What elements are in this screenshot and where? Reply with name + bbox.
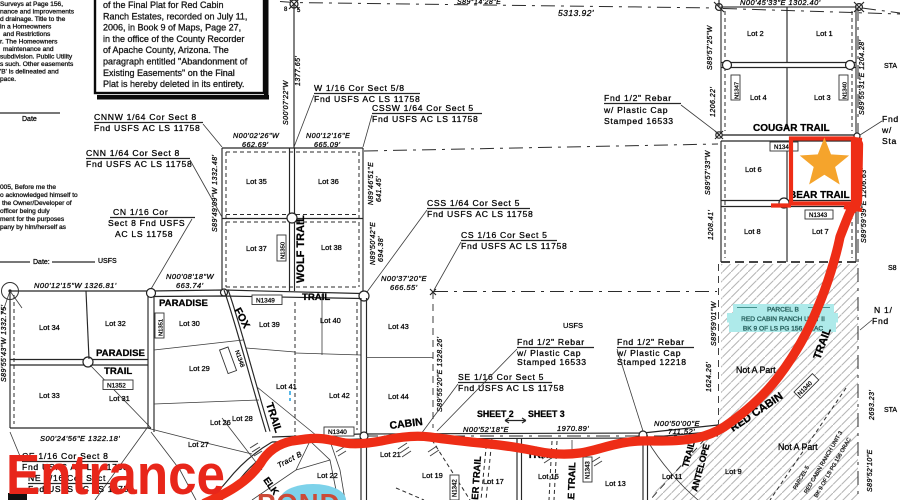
svg-text:TRAIL: TRAIL [302, 292, 330, 303]
svg-text:1624.26': 1624.26' [706, 362, 713, 392]
svg-text:Lot 7: Lot 7 [812, 227, 829, 236]
svg-text:of the Final Plat for Red Cabi: of the Final Plat for Red Cabin [103, 0, 224, 10]
svg-text:Fnd USFS AC LS 11758: Fnd USFS AC LS 11758 [461, 241, 568, 251]
svg-text:W 1/16 Cor Sect 5/8: W 1/16 Cor Sect 5/8 [314, 83, 405, 93]
svg-text:w/ Plastic Cap: w/ Plastic Cap [603, 105, 668, 115]
svg-text:Lot 13: Lot 13 [605, 479, 626, 488]
svg-text:Lot 34: Lot 34 [39, 323, 60, 332]
svg-text:STA: STA [884, 407, 897, 414]
svg-text:005, Before me the: 005, Before me the [0, 184, 56, 191]
svg-text:Lot 22: Lot 22 [317, 471, 338, 480]
svg-text:subdivision. Public Utility: subdivision. Public Utility [0, 54, 73, 61]
svg-text:N00'45'33"E 1302.40': N00'45'33"E 1302.40' [740, 0, 821, 7]
svg-text:Fnd: Fnd [882, 114, 899, 124]
svg-text:Fnd USFS AC LS 11758: Fnd USFS AC LS 11758 [372, 114, 479, 124]
svg-text:Lot 44: Lot 44 [388, 392, 409, 401]
svg-text:CNN 1/64 Cor Sect 8: CNN 1/64 Cor Sect 8 [86, 148, 180, 158]
svg-text:Fnd: Fnd [872, 316, 889, 326]
svg-text:N89'50'42"E: N89'50'42"E [370, 222, 377, 265]
svg-text:WOLF TRAIL: WOLF TRAIL [295, 215, 307, 283]
svg-text:N00'12'16"E: N00'12'16"E [306, 131, 350, 140]
svg-text:Stamped 12218: Stamped 12218 [617, 357, 687, 367]
svg-text:Stamped 16533: Stamped 16533 [517, 357, 587, 367]
svg-text:and Restrictions: and Restrictions [3, 31, 51, 38]
svg-text:Sect 8 Fnd USFS: Sect 8 Fnd USFS [108, 218, 185, 228]
svg-text:Lot 42: Lot 42 [329, 391, 350, 400]
svg-text:Lot 17: Lot 17 [483, 477, 504, 486]
svg-text:S89'55'20"E 1328.26': S89'55'20"E 1328.26' [437, 336, 444, 412]
svg-text:w/: w/ [881, 125, 892, 135]
svg-text:PARADISE: PARADISE [96, 348, 145, 359]
svg-text:N1350: N1350 [281, 242, 287, 259]
svg-text:1377.65': 1377.65' [295, 56, 302, 86]
svg-text:S89'59'01"W: S89'59'01"W [711, 300, 718, 346]
svg-text:N00'52'18"E: N00'52'18"E [463, 425, 509, 434]
svg-text:Lot 28: Lot 28 [232, 414, 253, 423]
svg-text:Sta: Sta [882, 136, 897, 146]
svg-text:Fnd USFS AC LS 11758: Fnd USFS AC LS 11758 [94, 123, 201, 133]
svg-text:Fnd USFS AC LS 11758: Fnd USFS AC LS 11758 [86, 159, 193, 169]
svg-text:r. The Homeowners: r. The Homeowners [0, 39, 58, 46]
svg-text:N1343: N1343 [586, 461, 592, 479]
svg-text:Lot 36: Lot 36 [318, 177, 339, 186]
svg-text:N1342: N1342 [453, 479, 459, 497]
svg-text:CSS 1/64 Cor Sect 5: CSS 1/64 Cor Sect 5 [427, 198, 520, 208]
svg-text:N89'46'51"E: N89'46'51"E [368, 162, 375, 205]
svg-text:Surveys at Page 156,: Surveys at Page 156, [0, 1, 63, 8]
svg-text:2693.23': 2693.23' [869, 390, 876, 421]
svg-text:SHEET 2: SHEET 2 [477, 409, 514, 419]
svg-text:TRAIL: TRAIL [104, 366, 132, 377]
svg-text:Date: Date [22, 116, 37, 123]
svg-text:BEAR TRAIL: BEAR TRAIL [789, 190, 850, 201]
svg-text:N00'37'20"E: N00'37'20"E [381, 274, 427, 283]
svg-text:Lot 38: Lot 38 [321, 243, 342, 252]
svg-text:1208.41': 1208.41' [708, 210, 715, 240]
svg-text:Lot 33: Lot 33 [39, 391, 60, 400]
svg-text:S89'52'10"E: S89'52'10"E [867, 449, 874, 492]
svg-text:d drainage. Title to the: d drainage. Title to the [0, 16, 66, 23]
svg-text:Fnd 1/2" Rebar: Fnd 1/2" Rebar [517, 337, 585, 347]
svg-text:Plat is hereby deleted in its: Plat is hereby deleted in its entirety. [103, 79, 244, 89]
svg-text:CNNW 1/64 Cor Sect 8: CNNW 1/64 Cor Sect 8 [94, 112, 197, 122]
svg-text:S89'57'33"W: S89'57'33"W [705, 149, 712, 195]
svg-text:USFS: USFS [563, 321, 583, 330]
svg-text:Lot 15: Lot 15 [538, 472, 559, 481]
svg-text:Lot 40: Lot 40 [320, 316, 341, 325]
svg-text:N1349: N1349 [256, 298, 275, 305]
svg-text:Lot 29: Lot 29 [189, 364, 210, 373]
svg-text:Lot 21: Lot 21 [380, 450, 401, 459]
svg-text:1970.89': 1970.89' [557, 424, 589, 433]
svg-text:S8: S8 [888, 265, 897, 272]
svg-text:paragraph entitled "Abandonmen: paragraph entitled "Abandonment of [103, 57, 248, 67]
svg-text:SE 1/16 Cor Sect 5: SE 1/16 Cor Sect 5 [458, 372, 544, 382]
svg-text:S89°14'28"E: S89°14'28"E [457, 0, 501, 6]
svg-text:663.74': 663.74' [176, 281, 204, 290]
svg-text:Lot 31: Lot 31 [109, 394, 130, 403]
svg-text:S89'57'25"W: S89'57'25"W [707, 24, 714, 70]
svg-text:STA: STA [884, 63, 897, 70]
svg-text:Stamped 16533: Stamped 16533 [604, 116, 674, 126]
svg-text:Lot 2: Lot 2 [747, 29, 764, 38]
svg-text:Lot 11: Lot 11 [662, 472, 682, 481]
svg-text:pany by him/herself as: pany by him/herself as [0, 224, 67, 231]
svg-text:N 1/: N 1/ [874, 305, 893, 315]
svg-text:nance and improvements: nance and improvements [0, 9, 75, 16]
svg-text:Ranch Estates, recorded on Jul: Ranch Estates, recorded on July 11, [103, 11, 247, 21]
svg-text:2006, in Book 9 of Maps, Page: 2006, in Book 9 of Maps, Page 27, [103, 23, 241, 33]
svg-text:COUGAR TRAIL: COUGAR TRAIL [753, 123, 830, 134]
svg-text:N1340: N1340 [843, 82, 849, 99]
svg-text:POND: POND [257, 488, 340, 500]
svg-text:in the office of the County Re: in the office of the County Recorder [103, 34, 244, 44]
svg-text:PARCEL B: PARCEL B [767, 307, 799, 314]
svg-text:the Owner/Developer of: the Owner/Developer of [2, 200, 72, 207]
svg-text:o acknowledged himself to: o acknowledged himself to [0, 192, 78, 199]
svg-text:N1343: N1343 [809, 212, 828, 219]
svg-text:1206.22': 1206.22' [710, 87, 717, 117]
svg-text:Lot 37: Lot 37 [246, 244, 267, 253]
svg-text:665.09': 665.09' [314, 140, 341, 149]
svg-text:of Apache County, Arizona. The: of Apache County, Arizona. The [103, 45, 229, 55]
svg-text:Lot 41: Lot 41 [276, 382, 297, 391]
svg-text:Lot 30: Lot 30 [179, 319, 200, 328]
svg-text:N1352: N1352 [107, 383, 126, 390]
svg-text:Fnd 1/2" Rebar: Fnd 1/2" Rebar [617, 337, 685, 347]
svg-text:N1347: N1347 [735, 82, 741, 99]
svg-text:Lot 4: Lot 4 [750, 93, 767, 102]
svg-text:Not A Part: Not A Part [736, 365, 776, 375]
svg-text:S00'24'56"E 1322.18': S00'24'56"E 1322.18' [40, 434, 120, 443]
svg-text:Lot 6: Lot 6 [745, 165, 762, 174]
svg-text:pace.: pace. [0, 76, 16, 83]
svg-text:s such. Other easements: s such. Other easements [0, 61, 74, 68]
svg-text:Lot 9: Lot 9 [725, 467, 742, 476]
svg-text:N1351: N1351 [159, 319, 165, 336]
svg-text:666.55': 666.55' [390, 283, 418, 292]
svg-text:S00'07'22"W: S00'07'22"W [283, 79, 290, 125]
svg-text:LE TRAIL: LE TRAIL [566, 462, 578, 500]
svg-text:Lot 19: Lot 19 [422, 471, 443, 480]
svg-text:in a Homeowners: in a Homeowners [0, 24, 52, 31]
svg-text:Not A Part: Not A Part [778, 442, 818, 452]
svg-text:Existing Easements" on the Fin: Existing Easements" on the Final [103, 68, 235, 78]
svg-text:CN 1/16 Cor: CN 1/16 Cor [113, 207, 168, 217]
svg-text:PARADISE: PARADISE [159, 298, 208, 309]
svg-text:641.45': 641.45' [376, 176, 383, 202]
svg-text:officer being duly: officer being duly [0, 208, 50, 215]
svg-text:maintenance and: maintenance and [3, 46, 54, 53]
svg-text:Lot 8: Lot 8 [744, 227, 761, 236]
svg-text:Lot 3: Lot 3 [814, 93, 831, 102]
svg-text:N00'08'18"W: N00'08'18"W [166, 272, 214, 281]
svg-text:SHEET 3: SHEET 3 [528, 409, 565, 419]
svg-text:662.69': 662.69' [242, 140, 269, 149]
svg-text:CS 1/16 Cor Sect 5: CS 1/16 Cor Sect 5 [461, 230, 548, 240]
svg-text:USFS: USFS [98, 258, 117, 265]
svg-text:Fnd 1/2" Rebar: Fnd 1/2" Rebar [604, 93, 672, 103]
svg-text:N00'12'15"W 1326.81': N00'12'15"W 1326.81' [34, 281, 117, 290]
svg-text:S89'49'09"W 1332.48': S89'49'09"W 1332.48' [212, 154, 219, 232]
svg-text:Lot 26: Lot 26 [210, 418, 231, 427]
svg-text:5313.92': 5313.92' [558, 8, 594, 18]
svg-text:S89'55'31"E 1204.28': S89'55'31"E 1204.28' [859, 39, 866, 115]
svg-text:ment for the purposes: ment for the purposes [0, 216, 65, 223]
svg-text:N1340: N1340 [328, 429, 347, 436]
svg-text:Entrance: Entrance [6, 443, 225, 500]
svg-text:Lot 39: Lot 39 [259, 320, 280, 329]
svg-text:'B' is delineated and: 'B' is delineated and [0, 69, 59, 76]
svg-text:Fnd USFS AC LS 11758: Fnd USFS AC LS 11758 [458, 383, 565, 393]
svg-text:Lot 32: Lot 32 [105, 319, 126, 328]
svg-text:CSSW 1/64 Cor Sect 5: CSSW 1/64 Cor Sect 5 [372, 103, 474, 113]
svg-text:Date:: Date: [33, 259, 50, 266]
svg-text:694.38': 694.38' [378, 236, 385, 262]
svg-text:Fnd USFS AC LS 11758: Fnd USFS AC LS 11758 [427, 209, 534, 219]
svg-text:Lot 1: Lot 1 [816, 29, 833, 38]
svg-text:S89'55'43"W 1332.75': S89'55'43"W 1332.75' [1, 304, 8, 382]
svg-text:Lot 35: Lot 35 [246, 177, 267, 186]
svg-text:AC LS 11758: AC LS 11758 [115, 229, 173, 239]
svg-text:N00'02'26"W: N00'02'26"W [233, 131, 280, 140]
svg-text:Lot 43: Lot 43 [388, 322, 409, 331]
